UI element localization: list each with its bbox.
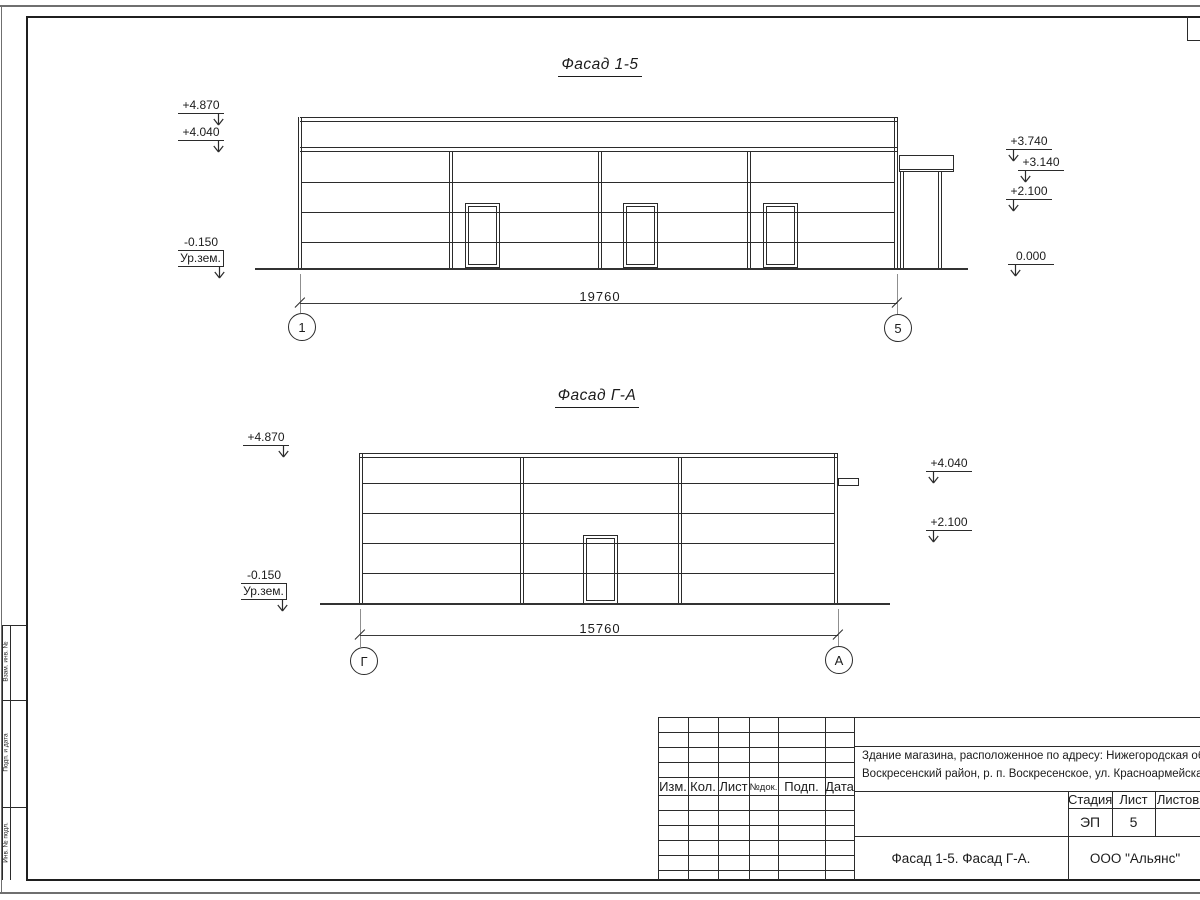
titleblock-line — [854, 746, 1200, 747]
sheets-header: Листов — [1155, 792, 1200, 807]
dimension-value: 19760 — [520, 289, 680, 304]
titleblock-line — [658, 717, 1200, 718]
down-arrow-icon — [214, 266, 225, 279]
inner-frame-left — [26, 16, 28, 880]
mullion — [598, 152, 602, 270]
parapet-line — [359, 457, 838, 458]
titleblock-line — [854, 717, 855, 880]
inner-frame-bottom — [26, 879, 1200, 881]
elevation-value: +4.870 — [178, 98, 224, 114]
rev-header-izm: Изм. — [658, 779, 688, 794]
mullion — [678, 457, 682, 604]
door-leaf — [766, 206, 795, 265]
ground-level-mark: -0.150 Ур.зем. — [241, 568, 287, 600]
ground-line — [255, 268, 968, 270]
door-leaf — [586, 538, 615, 601]
elevation-mark: +4.040 — [178, 125, 224, 141]
door-leaf — [468, 206, 497, 265]
margin-column-line — [10, 625, 11, 880]
extension-line — [360, 609, 361, 647]
elevation-value: +4.040 — [926, 456, 972, 472]
elevation-value: -0.150 — [241, 568, 287, 584]
down-arrow-icon — [1008, 199, 1019, 212]
stage-value: ЭП — [1068, 814, 1112, 830]
wall-right — [894, 117, 898, 270]
drawing-title: Фасад 1-5. Фасад Г-А. — [856, 851, 1066, 866]
axis-bubble-g: Г — [350, 647, 378, 675]
rev-header-data: Дата — [825, 779, 854, 794]
axis-bubble-5: 5 — [884, 314, 912, 342]
sheet-number: 5 — [1112, 814, 1155, 830]
titleblock-line — [658, 855, 854, 856]
company-name: ООО "Альянс" — [1070, 851, 1200, 866]
elevation-mark: +2.100 — [1006, 184, 1052, 200]
ground-level-label: Ур.зем. — [241, 584, 287, 600]
parapet-line — [300, 121, 898, 122]
down-arrow-icon — [928, 530, 939, 543]
down-arrow-icon — [278, 445, 289, 458]
ground-level-mark: -0.150 Ур.зем. — [178, 235, 224, 267]
dimension-value: 15760 — [520, 621, 680, 636]
rev-header-ndok: №док. — [749, 782, 778, 793]
axis-label: 5 — [894, 321, 901, 336]
ground-line — [320, 603, 890, 605]
corner-stamp-line-h — [1187, 40, 1200, 41]
margin-label: Взам. инв. № — [3, 626, 10, 698]
extension-line — [838, 609, 839, 646]
wall-right — [834, 453, 838, 604]
door — [465, 203, 500, 268]
annex-wall — [900, 172, 904, 268]
outer-border-bottom — [0, 892, 1200, 894]
inner-frame-top — [26, 16, 1200, 18]
titleblock-line — [1068, 808, 1200, 809]
elevation-mark: 0.000 — [1008, 249, 1054, 265]
titleblock-line — [658, 777, 854, 778]
titleblock-line — [658, 747, 854, 748]
corner-stamp-line-v — [1187, 16, 1188, 40]
down-arrow-icon — [928, 471, 939, 484]
down-arrow-icon — [213, 140, 224, 153]
annex-wall — [938, 172, 942, 268]
titleblock-line — [658, 762, 854, 763]
elevation-mark: +3.740 — [1006, 134, 1052, 150]
extension-line — [300, 274, 301, 313]
door — [623, 203, 658, 268]
titleblock-line — [658, 810, 854, 811]
elevation-value: 0.000 — [1008, 249, 1054, 265]
wall-left — [359, 453, 363, 604]
wall-left — [298, 117, 302, 270]
project-name-line1: Здание магазина, расположенное по адресу… — [862, 750, 1200, 762]
rev-header-podp: Подп. — [778, 779, 825, 794]
margin-column-divider — [2, 700, 26, 701]
elevation-value: +4.040 — [178, 125, 224, 141]
elevation-value: -0.150 — [178, 235, 224, 251]
annex-roof-line — [899, 169, 954, 170]
down-arrow-icon — [1020, 170, 1031, 183]
titleblock-line — [658, 870, 854, 871]
elevation-value: +3.140 — [1018, 155, 1064, 171]
panel-line — [363, 513, 834, 514]
panel-line — [363, 483, 834, 484]
drawing-sheet: Взам. инв. № Подп. и дата Инв. № подл. Ф… — [0, 0, 1200, 900]
elevation-mark: +4.870 — [243, 430, 289, 446]
mullion — [449, 152, 453, 270]
elevation-value: +2.100 — [1006, 184, 1052, 200]
mullion — [747, 152, 751, 270]
axis-bubble-a: А — [825, 646, 853, 674]
stage-header: Стадия — [1068, 792, 1112, 807]
sheet-header: Лист — [1112, 792, 1155, 807]
facade-g-a-title: Фасад Г-А — [527, 387, 667, 408]
ground-level-label: Ур.зем. — [178, 251, 224, 267]
facade-1-5-title: Фасад 1-5 — [530, 56, 670, 77]
axis-label: 1 — [298, 320, 305, 335]
elevation-mark: +2.100 — [926, 515, 972, 531]
wall-pipe — [838, 478, 859, 486]
elevation-value: +3.740 — [1006, 134, 1052, 150]
titleblock-line — [854, 836, 1200, 837]
door — [763, 203, 798, 268]
titleblock-line — [658, 825, 854, 826]
extension-line — [897, 274, 898, 314]
door — [583, 535, 618, 604]
fascia-line — [300, 147, 898, 148]
axis-label: Г — [360, 654, 367, 669]
titleblock-line — [658, 732, 854, 733]
elevation-mark: +4.870 — [178, 98, 224, 114]
elevation-mark: +3.140 — [1018, 155, 1064, 171]
parapet-line — [300, 117, 898, 118]
margin-label: Подп. и дата — [3, 717, 10, 789]
elevation-mark: +4.040 — [926, 456, 972, 472]
down-arrow-icon — [277, 599, 288, 612]
door-leaf — [626, 206, 655, 265]
parapet-line — [359, 453, 838, 454]
mullion — [520, 457, 524, 604]
down-arrow-icon — [1010, 264, 1021, 277]
rev-header-kol: Кол. — [688, 779, 718, 794]
rev-header-list: Лист — [718, 779, 749, 794]
elevation-value: +4.870 — [243, 430, 289, 446]
elevation-value: +2.100 — [926, 515, 972, 531]
titleblock-line — [658, 840, 854, 841]
outer-border-top — [0, 5, 1200, 7]
titleblock-line — [658, 795, 854, 796]
margin-label: Инв. № подл. — [3, 807, 10, 879]
axis-label: А — [835, 653, 844, 668]
axis-bubble-1: 1 — [288, 313, 316, 341]
project-name-line2: Воскресенский район, р. п. Воскресенское… — [862, 768, 1200, 780]
